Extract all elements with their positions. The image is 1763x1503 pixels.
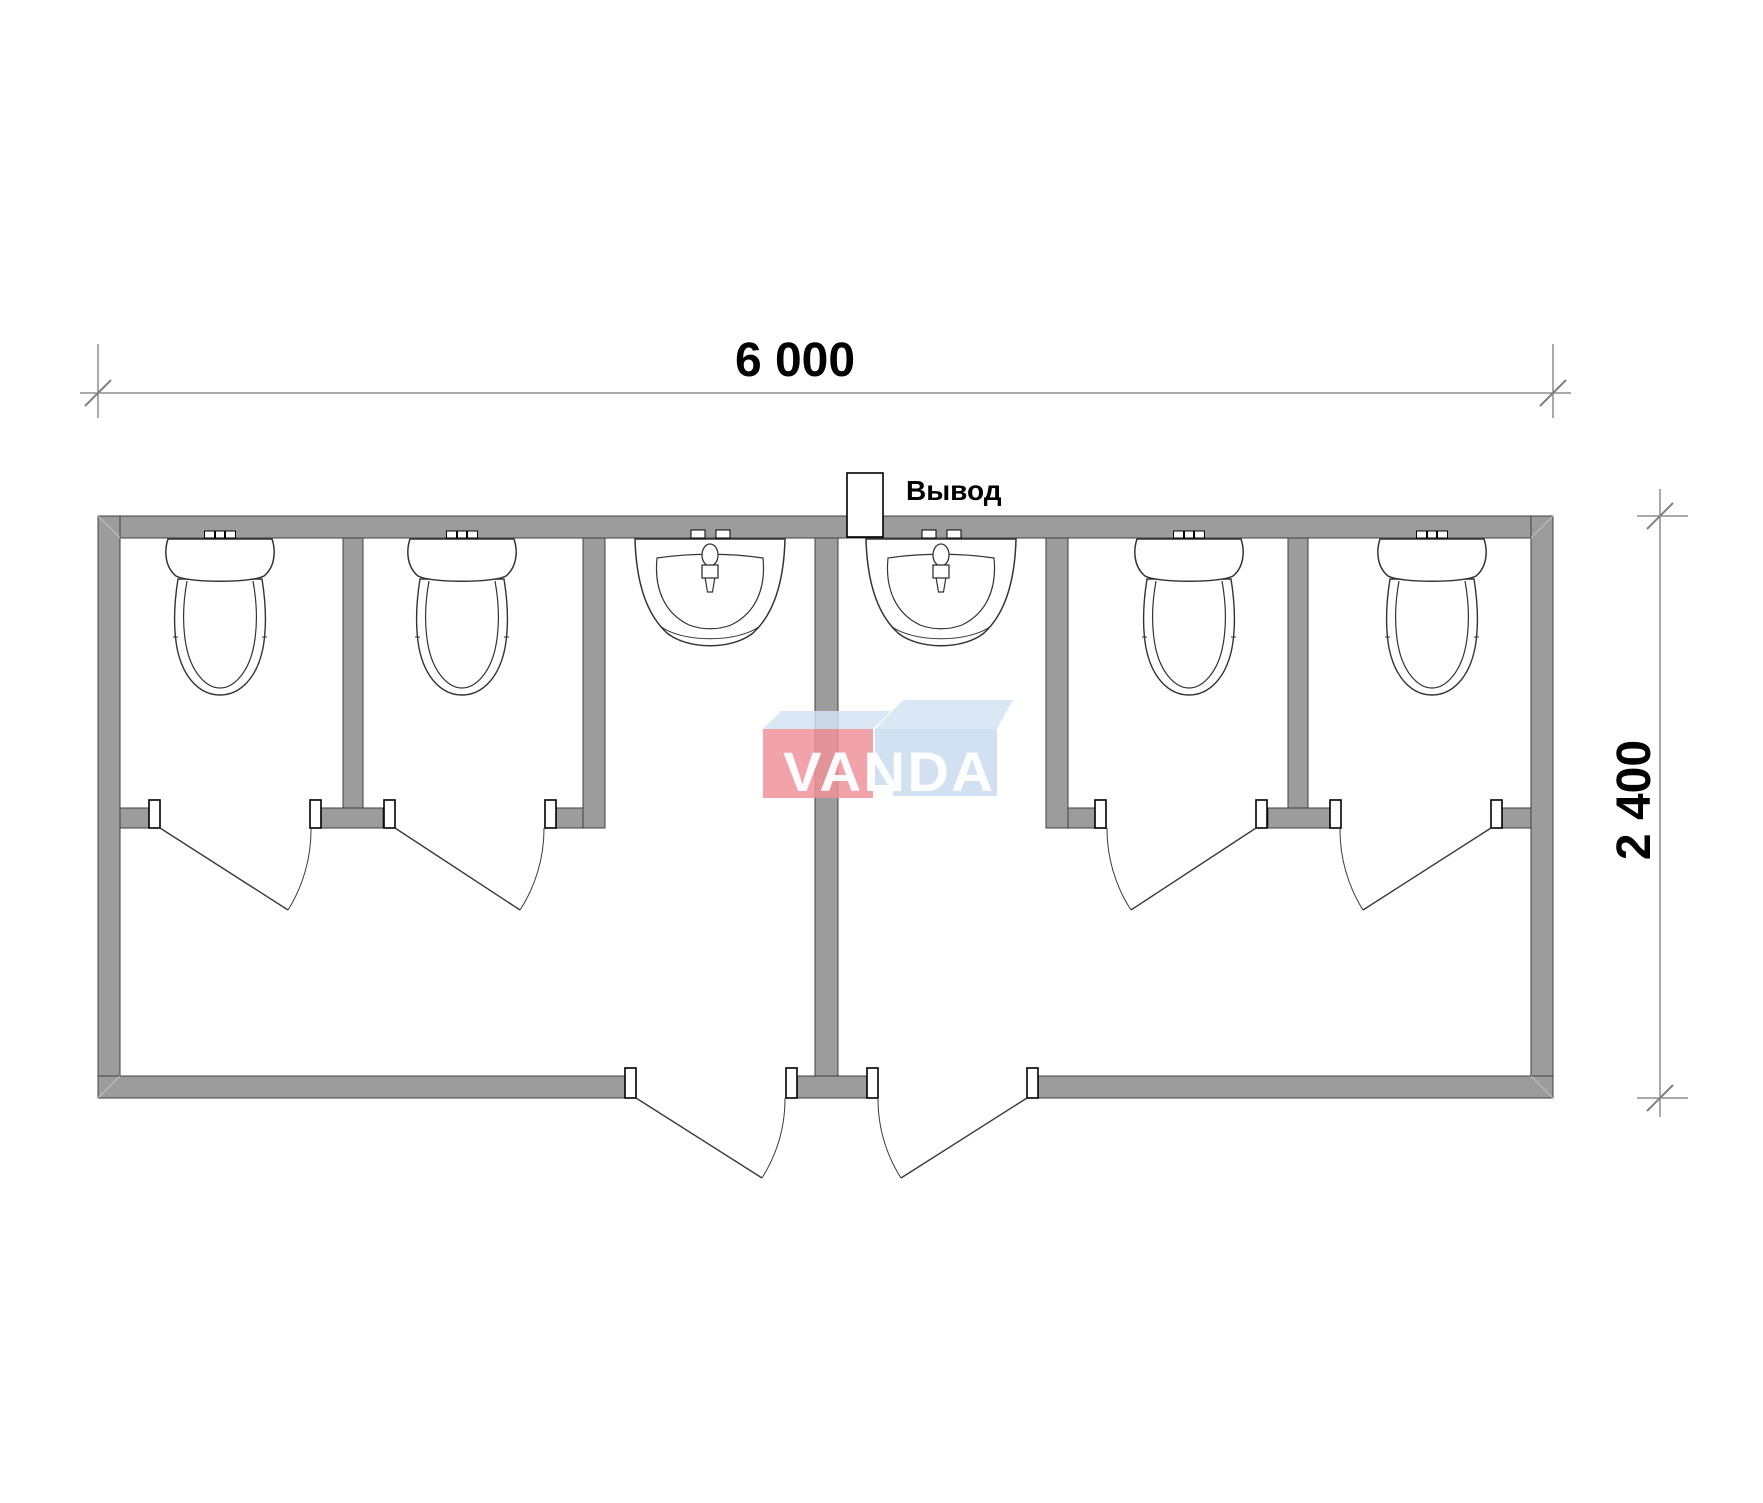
jamb [1027, 1068, 1038, 1098]
dimension-width: 6 000 [80, 334, 1571, 418]
wall-top [98, 516, 1553, 538]
door-stall-2 [395, 828, 544, 910]
floor-plan-drawing: Вывод 6 000 2 400 VANDA [0, 0, 1763, 1503]
wall-left [98, 516, 120, 1098]
jamb [545, 800, 556, 828]
jamb [384, 800, 395, 828]
jamb [867, 1068, 878, 1098]
stub-partition-1-2 [320, 808, 383, 828]
jamb [1256, 800, 1267, 828]
watermark-text: VANDA [783, 740, 995, 803]
jamb [310, 800, 321, 828]
jamb [625, 1068, 636, 1098]
partition-stall-3-4 [1288, 538, 1308, 828]
dimension-height: 2 400 [1608, 489, 1688, 1117]
wall-center [815, 538, 838, 1098]
jamb [786, 1068, 797, 1098]
toilet-stall-2-toilet [408, 531, 516, 695]
jamb [1330, 800, 1341, 828]
wall-bottom-right [1038, 1076, 1553, 1098]
entrance-door-right [878, 1098, 1027, 1178]
wall-bottom-left [98, 1076, 625, 1098]
jamb [1095, 800, 1106, 828]
wall-washroom-stall3 [1046, 538, 1068, 828]
door-stall-1 [160, 828, 311, 910]
floor-plan-page: Вывод 6 000 2 400 VANDA [0, 0, 1763, 1503]
stub-left-wall [120, 808, 150, 828]
jamb [149, 800, 160, 828]
partition-stall-1-2 [343, 538, 363, 828]
entrance-door-left [636, 1098, 785, 1178]
door-stall-3 [1107, 828, 1256, 910]
toilet-stall-4-toilet [1378, 531, 1486, 695]
stub-wall2 [555, 808, 583, 828]
wall-stall2-washroom [583, 538, 605, 828]
jamb [1491, 800, 1502, 828]
dimension-height-label: 2 400 [1608, 740, 1661, 860]
outlet-label: Вывод [906, 475, 1002, 506]
dimension-width-label: 6 000 [735, 334, 855, 387]
stub-partition-3-4 [1268, 808, 1331, 828]
wall-right [1531, 516, 1553, 1098]
washbasin-left [635, 530, 785, 646]
washbasin-right [866, 530, 1016, 646]
watermark-logo: VANDA [763, 700, 1013, 803]
stub-center-bottom [797, 1076, 868, 1098]
toilet-stall-1-toilet [166, 531, 274, 695]
outlet-box-icon [847, 473, 883, 537]
toilet-stall-3-toilet [1135, 531, 1243, 695]
door-stall-4 [1340, 828, 1491, 910]
logo-blue-top-face [875, 700, 1013, 729]
logo-red-top-face [763, 711, 891, 729]
stub-wall3 [1068, 808, 1096, 828]
stub-right-wall [1502, 808, 1531, 828]
